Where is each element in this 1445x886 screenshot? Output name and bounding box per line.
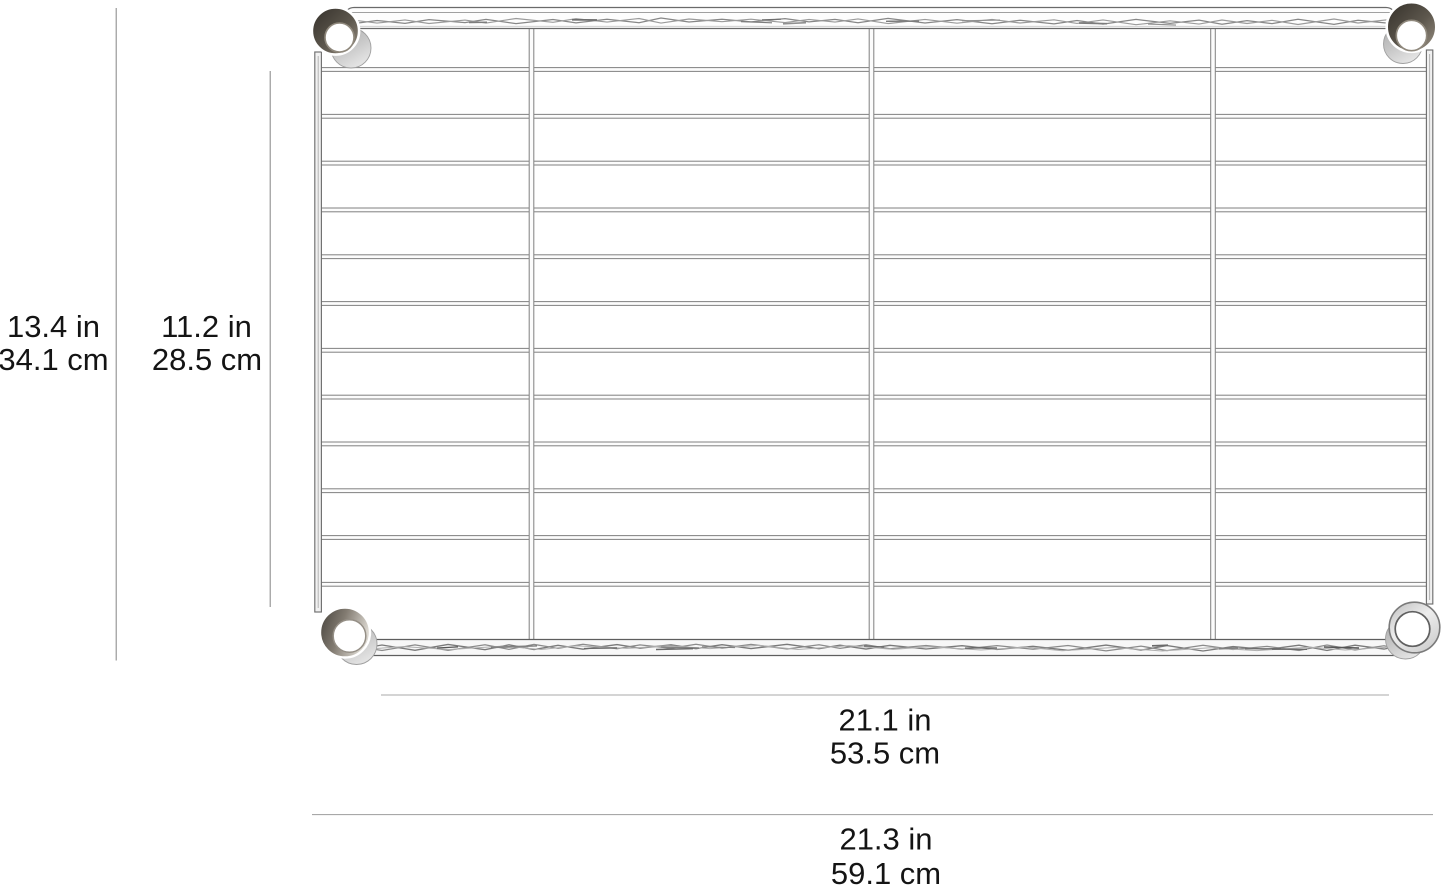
svg-text:13.4 in: 13.4 in: [7, 309, 100, 344]
svg-text:11.2 in: 11.2 in: [161, 309, 252, 344]
svg-text:34.1 cm: 34.1 cm: [0, 342, 109, 377]
svg-text:21.1 in: 21.1 in: [838, 703, 931, 738]
svg-text:28.5 cm: 28.5 cm: [152, 342, 262, 377]
svg-text:59.1 cm: 59.1 cm: [831, 856, 941, 886]
svg-text:21.3 in: 21.3 in: [839, 822, 932, 857]
svg-text:53.5 cm: 53.5 cm: [830, 736, 940, 771]
